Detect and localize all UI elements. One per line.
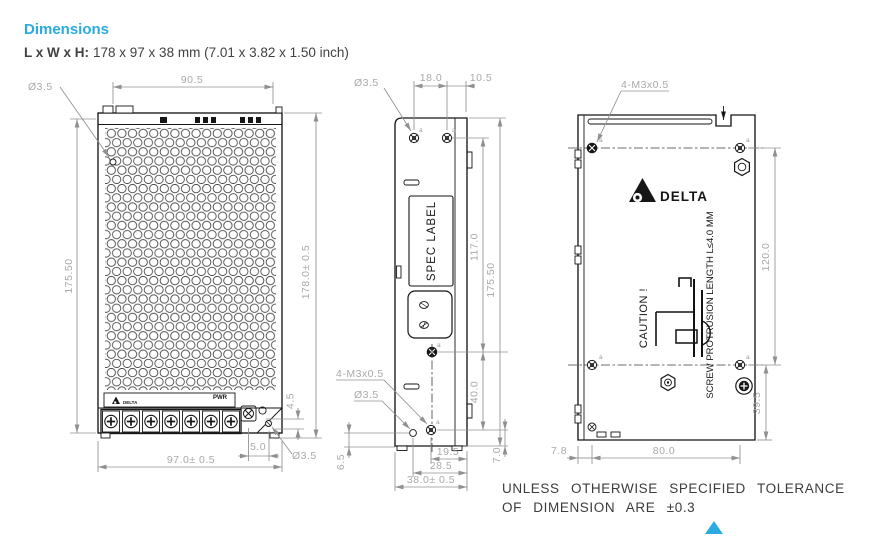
dim-side-screw-pitch: 18.0 — [420, 72, 442, 84]
front-view: DELTA PWR — [98, 106, 282, 438]
dim-side-hole-span: 28.5 — [430, 460, 452, 472]
side-view: a a SPEC LABEL a a — [395, 118, 472, 452]
mounting-tab — [116, 106, 133, 113]
datum-label: a — [419, 127, 423, 134]
datum-label: a — [436, 419, 440, 426]
caution-label: CAUTION ! — [638, 288, 650, 348]
dim-side-edge-offset: 10.5 — [470, 72, 492, 84]
dim-back-bottom-offset: 39.5 — [751, 392, 763, 414]
mounting-hole — [110, 159, 116, 165]
screw-protrusion-diagram — [656, 278, 710, 357]
screw-hole — [587, 360, 596, 369]
hex-nut — [735, 159, 750, 176]
dim-front-corner-height: 4.5 — [285, 393, 297, 409]
datum-label: a — [452, 127, 456, 134]
dim-side-lower-pitch: 40.0 — [469, 381, 481, 403]
screw-hole — [442, 133, 451, 142]
dim-front-hole-top: Ø3.5 — [28, 81, 53, 93]
mounting-tab — [103, 106, 113, 113]
datum-label: a — [599, 354, 603, 361]
dimension-drawing: DELTA PWR Ø3.5 90.5 — [0, 0, 878, 536]
datum-label: a — [746, 137, 750, 144]
dim-side-bottom-offset: 7.0 — [491, 447, 503, 463]
dim-side-bottom-width: 38.0± 0.5 — [407, 474, 455, 486]
back-thread-label: 4-M3x0.5 — [621, 79, 669, 91]
top-clip-tabs — [160, 117, 261, 123]
brand-mark: DELTA — [123, 400, 138, 405]
mounting-tab — [276, 107, 282, 113]
screw-hole — [409, 133, 418, 142]
dim-back-vertical-pitch: 120.0 — [760, 243, 772, 272]
through-hole — [410, 430, 417, 437]
tolerance-note-line1: UNLESS OTHERWISE SPECIFIED TOLERANCE — [502, 479, 845, 498]
scroll-to-top-button[interactable] — [705, 521, 723, 534]
dim-side-hole-bottom: Ø3.5 — [354, 389, 379, 401]
screw-hole — [735, 360, 744, 369]
dim-front-pot-offset: 5.0 — [250, 441, 266, 453]
tolerance-note: UNLESS OTHERWISE SPECIFIED TOLERANCE OF … — [502, 479, 845, 517]
datum-label: a — [599, 137, 603, 144]
screw-protrusion-note: SCREW PROTRUSION LENGTH L≤4.0 MM — [705, 211, 716, 398]
back-view: a a DELTA CAUTION ! SCREW PROTRUSION LEN… — [568, 106, 764, 440]
delta-logo: DELTA — [629, 178, 708, 204]
terminal-block — [101, 410, 241, 434]
dim-front-hole-bottom: Ø3.5 — [292, 450, 317, 462]
screw-hole — [587, 143, 597, 153]
datum-label: a — [746, 354, 750, 361]
pwr-label: PWR — [213, 395, 228, 401]
delta-logo-text: DELTA — [660, 189, 708, 204]
dim-front-top-width: 90.5 — [181, 74, 203, 86]
tolerance-note-line2: OF DIMENSION ARE ±0.3 — [502, 498, 845, 517]
dim-back-left-offset: 7.8 — [551, 445, 567, 457]
dim-side-side-offset: 6.5 — [335, 454, 347, 470]
datum-label: a — [437, 342, 441, 349]
dim-front-bottom-width: 97.0± 0.5 — [167, 454, 215, 466]
dim-side-mid-height: 117.0 — [469, 233, 481, 261]
screw-hole — [735, 143, 744, 152]
dim-back-horizontal-pitch: 80.0 — [653, 445, 675, 457]
ventilation-holes — [105, 128, 276, 390]
side-view-dimensions: Ø3.5 18.0 10.5 117.0 175.50 40.0 7.0 4-M… — [335, 72, 508, 491]
side-thread-label: 4-M3x0.5 — [336, 368, 384, 380]
dim-side-hole-top: Ø3.5 — [354, 77, 379, 89]
dim-side-full-height: 175.50 — [485, 262, 497, 297]
dim-side-hole-to-edge: 19.5 — [437, 446, 459, 458]
spec-label-text: SPEC LABEL — [426, 201, 438, 281]
dim-front-right-height: 178.0± 0.5 — [300, 245, 312, 300]
output-connector — [408, 291, 452, 338]
dim-front-left-height: 175.50 — [63, 258, 75, 293]
screw-hole — [426, 425, 435, 434]
